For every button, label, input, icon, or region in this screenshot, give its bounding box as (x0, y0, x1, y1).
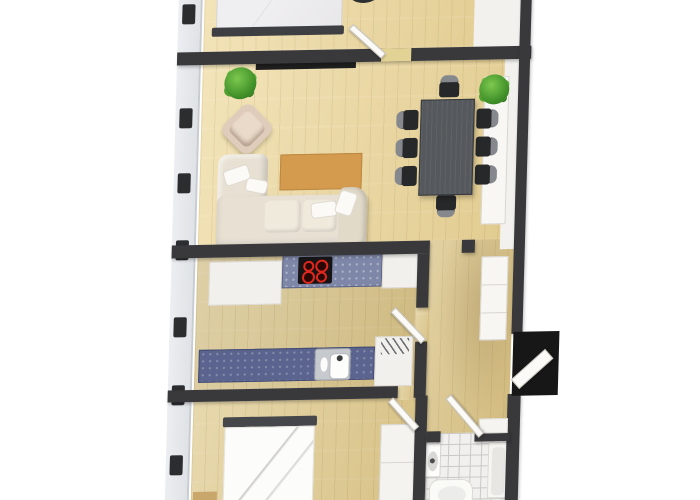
toilet (429, 479, 474, 500)
wardrobe (379, 424, 418, 500)
wall-face-top-right (473, 0, 523, 47)
hall-closet (479, 256, 508, 341)
sink-tray (320, 357, 327, 371)
dining-chair (395, 137, 420, 159)
wall-kitchen-hall-upper (416, 254, 430, 308)
kitchen-sink (314, 348, 351, 381)
window (177, 173, 191, 193)
floorplan-canvas (0, 0, 700, 500)
burner-icon (302, 271, 315, 284)
window (169, 455, 183, 475)
dining-chair (396, 109, 421, 131)
dining-chair (473, 163, 498, 185)
window (182, 4, 196, 24)
exterior-right-wall-lower (505, 394, 521, 500)
wall-stub-hall (462, 240, 475, 253)
dining-table (418, 99, 475, 196)
doorway-bedroom-top (381, 48, 411, 62)
sofa-cushion (264, 200, 301, 233)
apartment-floorplan (190, 0, 535, 500)
dish-rack (381, 338, 409, 355)
orange-rug (279, 153, 362, 191)
kitchen-cabinet-right (382, 253, 420, 289)
wall-kitchen-hall-lower (414, 342, 428, 398)
bedside-rug (193, 492, 217, 500)
dining-chair (473, 135, 498, 157)
window (173, 317, 187, 337)
window (179, 108, 193, 128)
dining-chair (474, 107, 499, 129)
shower-tray (491, 447, 505, 495)
cooktop (298, 256, 333, 284)
dining-chair (394, 165, 419, 187)
toilet-bowl (438, 486, 467, 500)
burner-icon (316, 272, 327, 283)
dining-chair (438, 75, 461, 99)
bed-bottom-mattress (222, 426, 314, 500)
wall-bathroom-top-left (426, 431, 440, 442)
dining-chair (435, 193, 458, 217)
kitchen-cabinet-left (208, 260, 282, 305)
